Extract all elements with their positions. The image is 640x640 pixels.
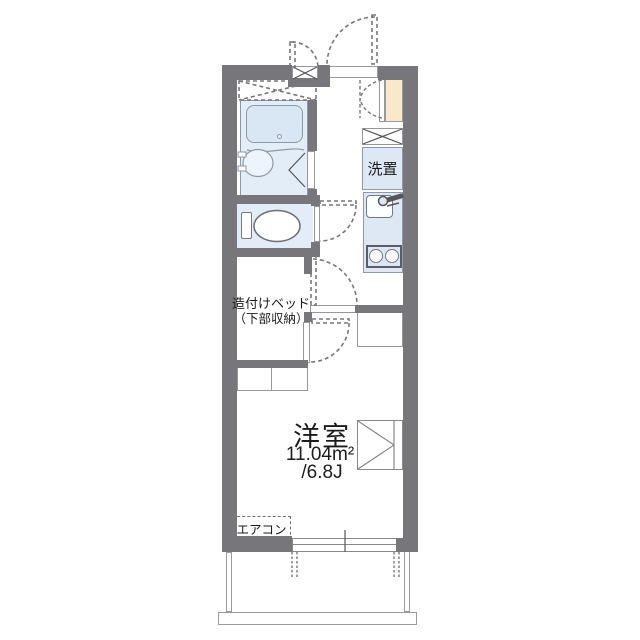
stove-burner-right [385, 249, 399, 263]
hall-room-door-swing [311, 252, 357, 305]
wall-top-right [378, 66, 403, 80]
washing-machine-space [362, 128, 403, 145]
wall-bath-right-bottom [308, 189, 317, 197]
wall-bath-toilet-divider [237, 195, 318, 204]
built-in-bed-label-line2: （下部収納） [232, 312, 310, 326]
floorplan-canvas: 洗置 エアコン [0, 0, 640, 640]
aircon-label: エアコン [236, 519, 286, 538]
room-area-jo: /6.8J [301, 462, 342, 484]
built-in-bed-label-line1: 造付けベッド [232, 297, 310, 312]
toilet-door-swing [320, 201, 356, 241]
wall-bottom-left [237, 536, 292, 552]
bathtub [246, 105, 303, 143]
wall-top-left [237, 65, 292, 80]
sliding-window-rail [292, 544, 403, 545]
balcony-wall-right [404, 550, 410, 612]
hall-room-door-threshold [310, 305, 356, 313]
shoe-cabinet [385, 78, 403, 122]
wall-right [403, 66, 418, 552]
balcony-drain-pipes [292, 552, 399, 579]
wall-bath-right-top [308, 100, 317, 151]
bath-door-leaf [307, 151, 315, 189]
entrance-threshold [328, 66, 378, 78]
wall-top-corner [288, 78, 330, 87]
refrigerator-space [357, 311, 403, 347]
bed-nook-door-swing [310, 319, 349, 362]
toilet-tank [241, 212, 252, 239]
washer-placement-box: 洗置 [362, 147, 403, 190]
wall-bed-bottom [222, 360, 308, 368]
service-door-swing [290, 42, 318, 68]
balcony-wall-left [226, 552, 232, 612]
closet-symbol-box [357, 420, 403, 470]
wall-toilet-bottom [237, 248, 320, 257]
entrance-door-swing [327, 15, 377, 65]
toilet-door-leaf [314, 206, 320, 242]
bed-step-divider [271, 367, 272, 391]
sliding-window [292, 538, 403, 552]
wall-hall-room [355, 305, 403, 313]
washer-placement-label: 洗置 [367, 158, 397, 179]
bathtub-drain [277, 134, 282, 139]
built-in-bed-label: 造付けベッド （下部収納） [232, 297, 310, 326]
bed-nook-door-leaf [303, 322, 310, 363]
stove-burner-left [369, 249, 383, 263]
bed-step-storage [237, 367, 308, 391]
kitchen-sink [366, 195, 393, 218]
shoe-cabinet-door-edge [379, 78, 385, 122]
wall-bed-right-top [304, 257, 312, 274]
wall-toilet-right-bottom [311, 242, 320, 257]
wall-bottom-right [396, 538, 418, 552]
balcony-rail [218, 612, 417, 625]
